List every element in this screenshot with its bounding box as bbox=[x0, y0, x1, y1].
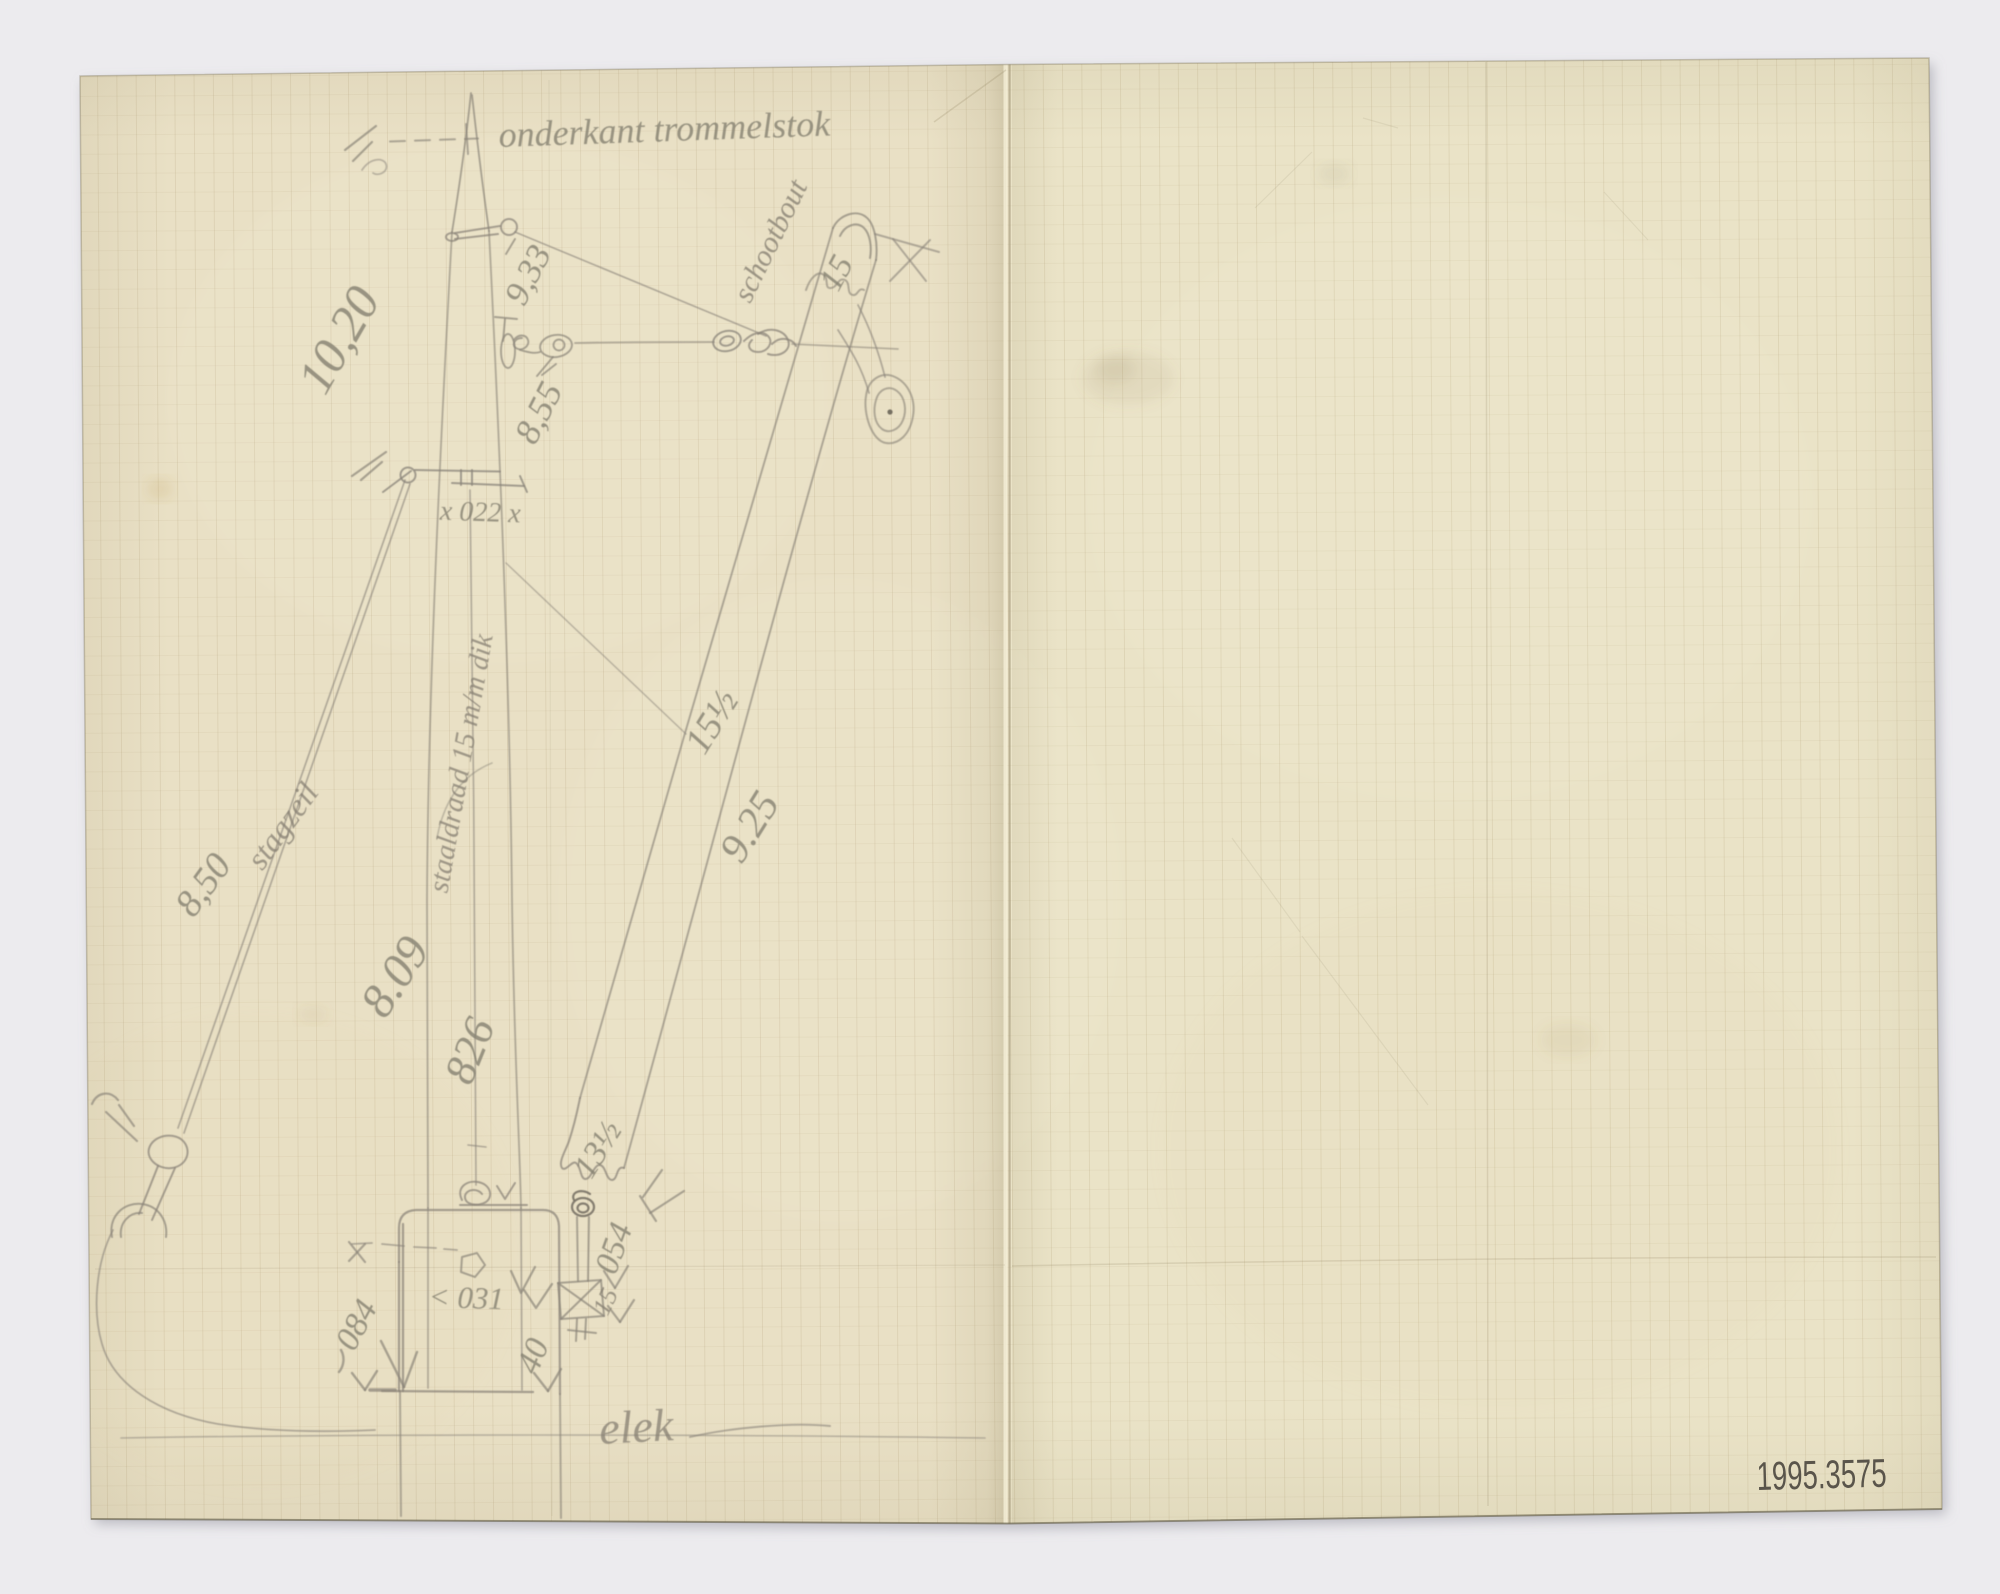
svg-text:x 022 x: x 022 x bbox=[438, 496, 521, 530]
svg-text:< 031: < 031 bbox=[428, 1279, 504, 1317]
svg-text:1995.3575: 1995.3575 bbox=[1756, 1452, 1887, 1499]
svg-text:elek: elek bbox=[598, 1399, 676, 1454]
